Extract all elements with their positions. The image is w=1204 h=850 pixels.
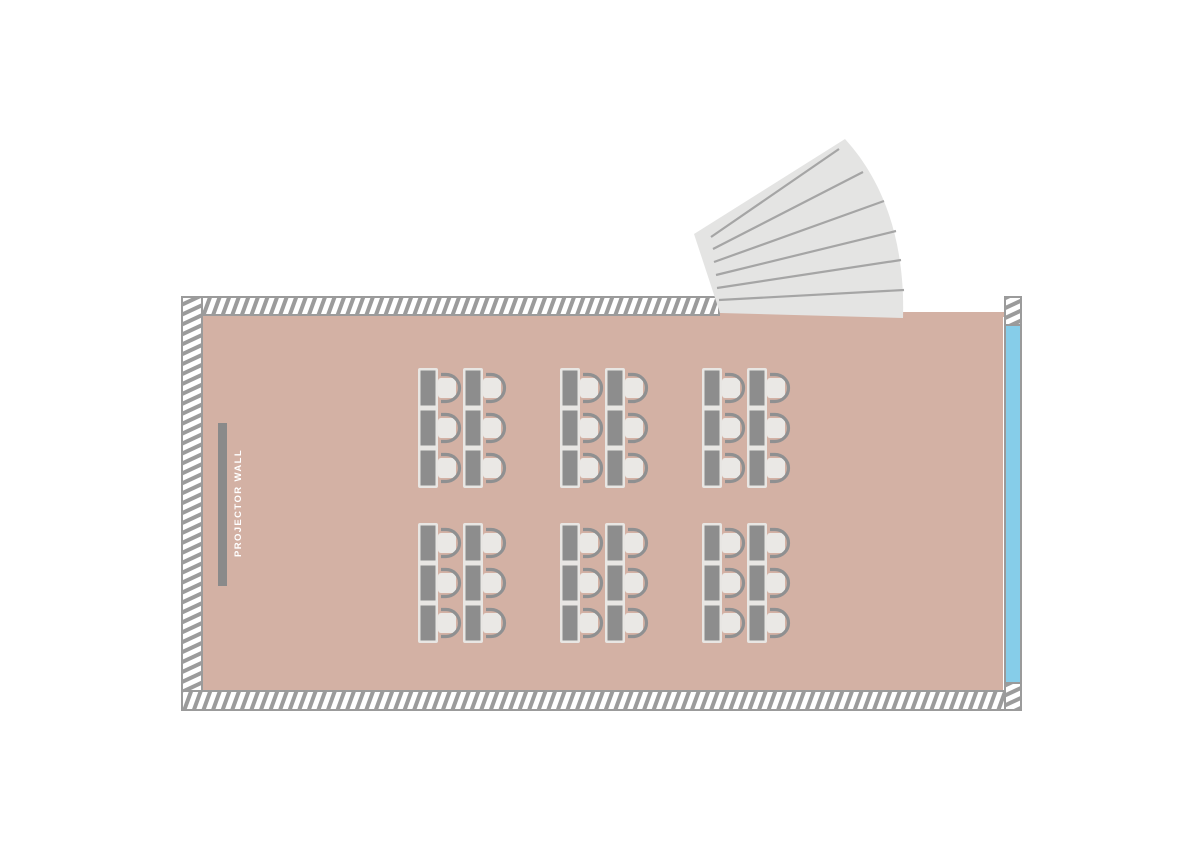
desk[interactable] — [466, 451, 481, 486]
chair-seat[interactable] — [625, 378, 643, 398]
chair-seat[interactable] — [767, 533, 785, 553]
chair-seat[interactable] — [722, 573, 740, 593]
room: PROJECTOR WALL — [182, 139, 1021, 710]
chair-seat[interactable] — [580, 458, 598, 478]
floorplan-canvas: PROJECTOR WALL — [0, 0, 1204, 850]
chair-seat[interactable] — [767, 378, 785, 398]
chair-seat[interactable] — [483, 418, 501, 438]
desk[interactable] — [608, 526, 623, 561]
desk[interactable] — [705, 526, 720, 561]
chair-seat[interactable] — [483, 533, 501, 553]
desk[interactable] — [563, 606, 578, 641]
desk[interactable] — [563, 411, 578, 446]
chair-seat[interactable] — [625, 418, 643, 438]
chair-seat[interactable] — [580, 613, 598, 633]
chair-seat[interactable] — [722, 418, 740, 438]
chair-seat[interactable] — [580, 533, 598, 553]
chair-seat[interactable] — [625, 458, 643, 478]
chair-seat[interactable] — [722, 378, 740, 398]
projector-wall-bar[interactable] — [218, 423, 227, 586]
desk[interactable] — [750, 606, 765, 641]
desk[interactable] — [705, 371, 720, 406]
desk[interactable] — [466, 566, 481, 601]
desk[interactable] — [563, 371, 578, 406]
desk[interactable] — [421, 526, 436, 561]
desk[interactable] — [608, 566, 623, 601]
chair-seat[interactable] — [625, 573, 643, 593]
chair-seat[interactable] — [625, 533, 643, 553]
chair-seat[interactable] — [483, 613, 501, 633]
wall-bottom — [182, 691, 1021, 710]
chair-seat[interactable] — [438, 533, 456, 553]
chair-seat[interactable] — [767, 458, 785, 478]
desk[interactable] — [705, 411, 720, 446]
desk[interactable] — [705, 566, 720, 601]
desk[interactable] — [608, 411, 623, 446]
desk[interactable] — [750, 411, 765, 446]
desk[interactable] — [563, 566, 578, 601]
desk[interactable] — [608, 606, 623, 641]
desk[interactable] — [750, 526, 765, 561]
room-floor — [202, 315, 1003, 691]
desk[interactable] — [466, 606, 481, 641]
desk[interactable] — [750, 371, 765, 406]
desk[interactable] — [421, 606, 436, 641]
wall-right-top-block — [1005, 297, 1021, 325]
chair-seat[interactable] — [625, 613, 643, 633]
desk[interactable] — [608, 451, 623, 486]
desk[interactable] — [750, 566, 765, 601]
desk[interactable] — [705, 606, 720, 641]
door-fan[interactable] — [694, 139, 904, 318]
chair-seat[interactable] — [438, 418, 456, 438]
desk[interactable] — [705, 451, 720, 486]
desk[interactable] — [421, 411, 436, 446]
desk[interactable] — [466, 371, 481, 406]
desk[interactable] — [563, 526, 578, 561]
chair-seat[interactable] — [767, 613, 785, 633]
desk[interactable] — [421, 566, 436, 601]
desk[interactable] — [750, 451, 765, 486]
chair-seat[interactable] — [483, 573, 501, 593]
desk[interactable] — [421, 451, 436, 486]
chair-seat[interactable] — [580, 573, 598, 593]
wall-right-bottom-block — [1005, 683, 1021, 710]
chair-seat[interactable] — [722, 533, 740, 553]
chair-seat[interactable] — [580, 418, 598, 438]
chair-seat[interactable] — [438, 378, 456, 398]
desk[interactable] — [466, 526, 481, 561]
chair-seat[interactable] — [580, 378, 598, 398]
chair-seat[interactable] — [722, 613, 740, 633]
desk[interactable] — [421, 371, 436, 406]
chair-seat[interactable] — [767, 418, 785, 438]
wall-left — [182, 297, 202, 710]
wall-top — [182, 297, 719, 315]
projector-wall-label: PROJECTOR WALL — [233, 449, 244, 557]
chair-seat[interactable] — [483, 458, 501, 478]
chair-seat[interactable] — [438, 613, 456, 633]
window[interactable] — [1005, 325, 1021, 683]
chair-seat[interactable] — [438, 573, 456, 593]
chair-seat[interactable] — [483, 378, 501, 398]
chair-seat[interactable] — [767, 573, 785, 593]
desk[interactable] — [466, 411, 481, 446]
desk[interactable] — [608, 371, 623, 406]
chair-seat[interactable] — [722, 458, 740, 478]
chair-seat[interactable] — [438, 458, 456, 478]
desk[interactable] — [563, 451, 578, 486]
